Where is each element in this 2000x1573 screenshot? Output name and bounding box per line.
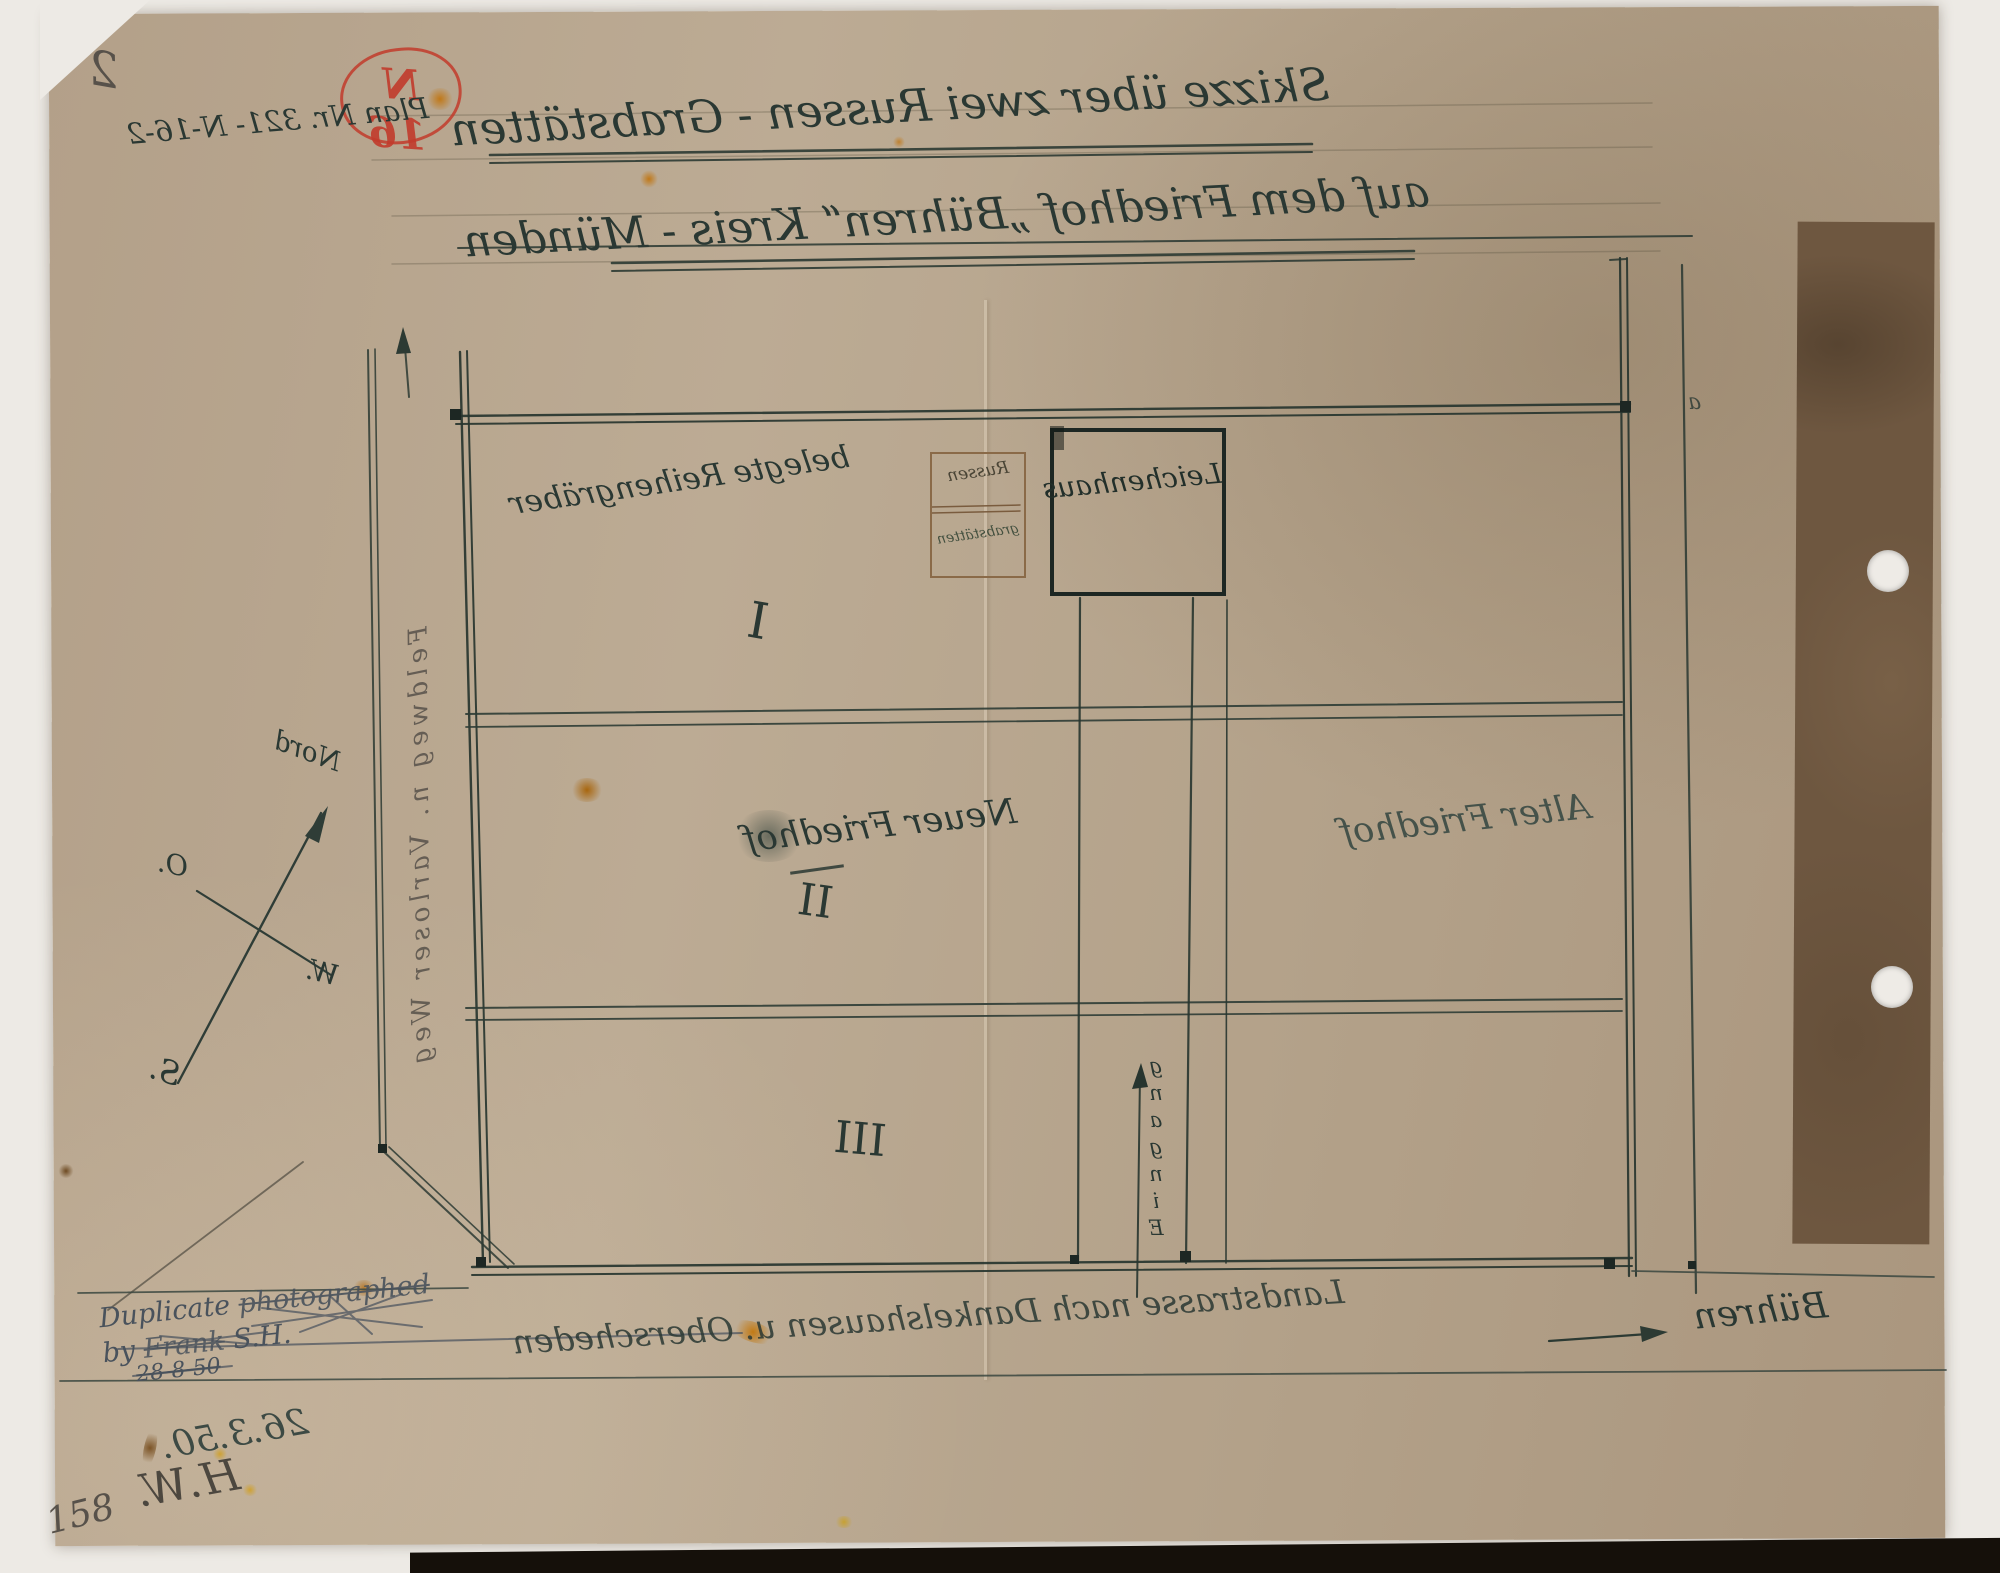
- section-dividers: [466, 702, 1622, 1020]
- russen-box-line2: grabstätten: [917, 518, 1038, 551]
- duplicate-note-word: by: [101, 1335, 137, 1369]
- left-road: [108, 327, 514, 1310]
- compass-figure: [178, 806, 331, 1083]
- leichenhaus-label: Leichenhaus: [1053, 457, 1223, 505]
- leichenhaus-box: Leichenhaus: [1050, 428, 1226, 596]
- duplicate-note-word: S.H.: [232, 1319, 293, 1356]
- fence-mark: a: [1688, 390, 1701, 415]
- section-two-numeral: II: [795, 874, 837, 929]
- left-road-label: Feldweg n. Varloser Weg: [403, 560, 438, 1135]
- eingang-label: gnagniE: [1144, 1054, 1168, 1249]
- outer-boundary: [458, 236, 1696, 1293]
- russen-box: Russen grabstätten: [930, 452, 1026, 578]
- russen-box-line1: Russen: [931, 456, 1025, 489]
- cemetery-border: [456, 258, 1636, 1276]
- left-road-label-text: Feldweg n. Varloser Weg: [403, 560, 438, 1135]
- leichenhaus-corner-blot: [1050, 426, 1064, 450]
- scanned-plan-page: N 16 2 Plan Nr. 321- N-16-2 Skizze über …: [0, 0, 2000, 1573]
- section-three-numeral: III: [832, 1112, 888, 1167]
- buehren-arrow: [1549, 1326, 1668, 1342]
